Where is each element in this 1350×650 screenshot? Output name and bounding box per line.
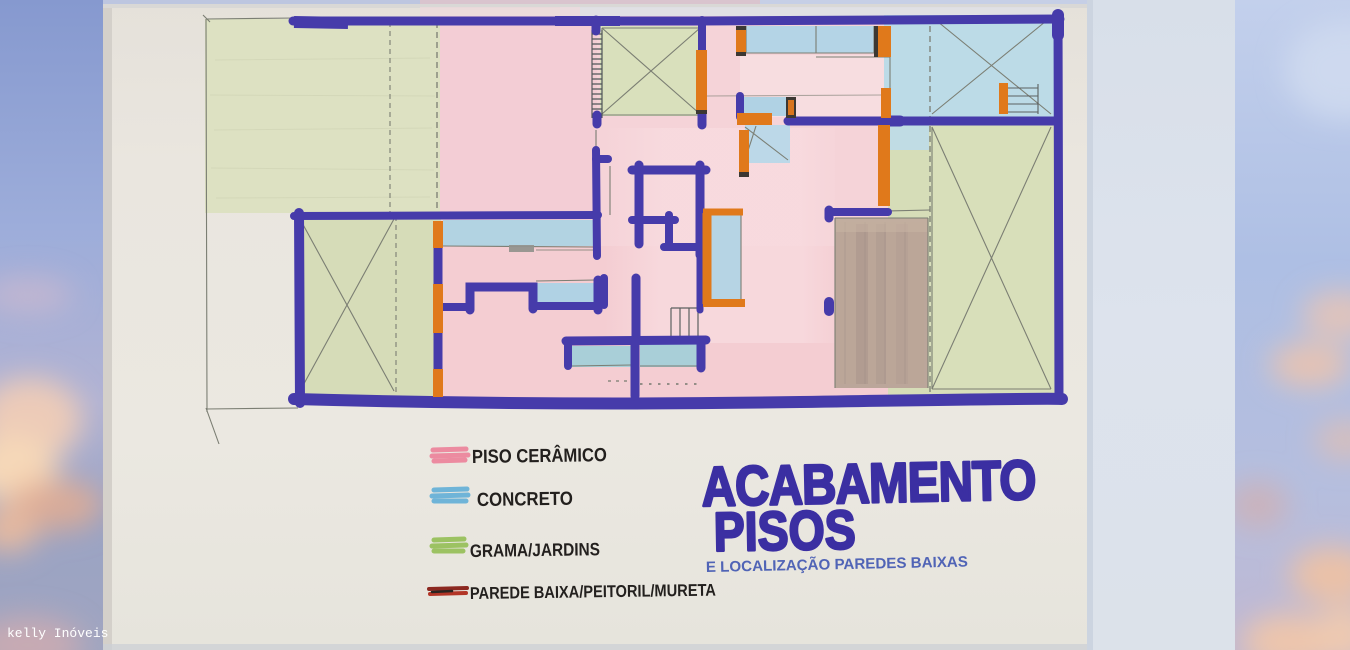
svg-text:PAREDE BAIXA/PEITORIL/MURETA: PAREDE BAIXA/PEITORIL/MURETA <box>470 581 716 603</box>
svg-text:CONCRETO: CONCRETO <box>477 489 573 511</box>
svg-text:kelly Inóveis: kelly Inóveis <box>7 626 108 641</box>
svg-text:GRAMA/JARDINS: GRAMA/JARDINS <box>470 539 600 561</box>
svg-text:PISO CERÂMICO: PISO CERÂMICO <box>472 444 607 468</box>
svg-text:PISOS: PISOS <box>713 498 856 562</box>
